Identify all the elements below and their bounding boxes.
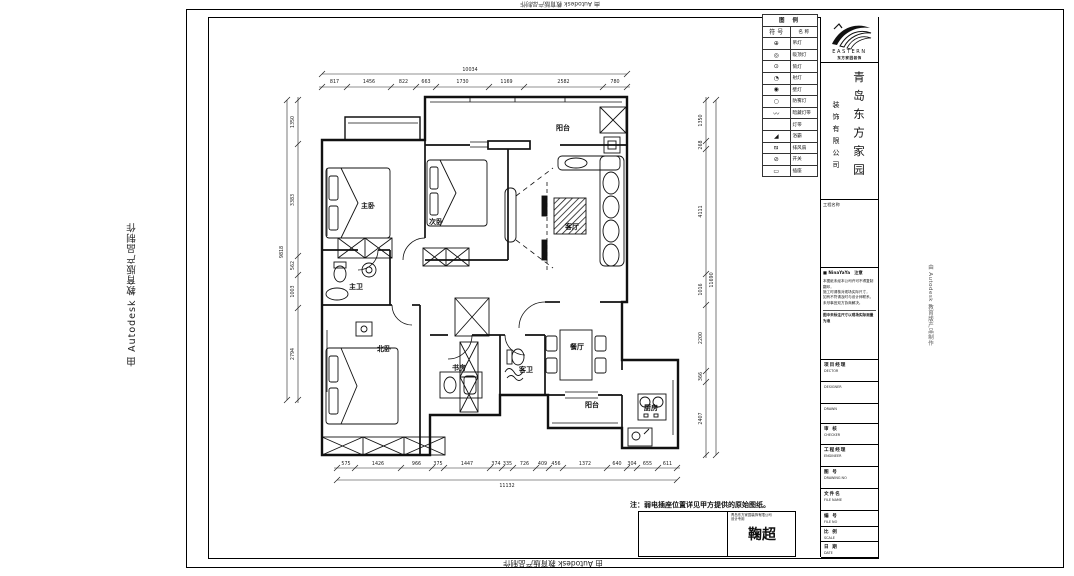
room-label: 阳台 [556,123,570,132]
legend-item-name: 筒灯 [790,61,818,73]
svg-text:456: 456 [551,461,560,467]
signature-box-divider [727,512,728,556]
floor-plan: 8171456822663173011692582780100345751426… [210,20,763,560]
legend-row: ⊘开关 [763,154,818,166]
svg-text:726: 726 [520,461,529,467]
legend-item-name: 射灯 [790,72,818,84]
autodesk-watermark-right: 由 Autodesk 教育版产品制作 [926,264,934,346]
legend-symbol-icon: ◎ [763,49,791,61]
autodesk-watermark-top: 由 Autodesk 教育版产品制作 [480,0,640,9]
furniture [326,156,666,446]
legend-row: ○防雾灯 [763,96,818,108]
legend-symbol-icon: ⧅ [763,142,791,154]
legend-row: ▭插座 [763,165,818,177]
project-name-label: 工程名称 [821,200,878,208]
north-bed [326,322,398,424]
svg-text:1447: 1447 [461,461,473,467]
notice-cell: ■ NinaYaYa 注意 本图纸未经本公司许可不得复制翻印，施工时请核对现场实… [821,268,878,360]
svg-text:268: 268 [698,140,704,149]
svg-text:1456: 1456 [363,79,375,85]
svg-text:1350: 1350 [698,114,704,126]
svg-text:1372: 1372 [579,461,591,467]
svg-text:11132: 11132 [499,483,514,489]
notice-lines: 本图纸未经本公司许可不得复制翻印，施工时请核对现场实际尺寸，如有不符请及时与设计… [823,279,876,306]
svg-text:780: 780 [610,79,619,85]
svg-text:366: 366 [698,372,704,381]
field-file-name: 文件名FILE NAME [821,489,878,511]
room-labels: 阳台主卧次卧客厅主卫北卧书房客卫餐厅阳台厨房 [349,123,658,412]
svg-text:1016: 1016 [698,283,704,295]
svg-text:575: 575 [341,461,350,467]
room-label: 客卫 [518,365,533,374]
legend-item-name: 暗藏灯带 [790,107,818,119]
svg-text:655: 655 [643,461,652,467]
room-label: 阳台 [585,400,599,409]
legend-symbol-icon: ◢ [763,130,791,142]
svg-text:1730: 1730 [456,79,468,85]
exterior-walls [322,97,678,455]
legend-symbol-icon: ⊕ [763,38,791,50]
svg-text:4111: 4111 [698,205,704,217]
field-date: 日 期DATE [821,542,878,558]
legend-symbol-icon: ○ [763,96,791,108]
svg-text:966: 966 [412,461,421,467]
legend-item-name: 插座 [790,165,818,177]
eastern-swoosh-logo-icon [827,19,873,50]
svg-text:304: 304 [627,461,636,467]
project-name-cell: 工程名称 [821,200,878,268]
field-engineer: 工程经理ENGINEER [821,445,878,467]
dim-bottom: 5751426966375144737433572640945613726403… [334,461,680,489]
svg-text:663: 663 [421,79,430,85]
legend-row: ⊕吊灯 [763,38,818,50]
field-drawing-no: 图 号DRAWING NO [821,467,878,489]
svg-text:2200: 2200 [698,332,704,344]
svg-text:409: 409 [538,461,547,467]
legend-row: ⊙筒灯 [763,61,818,73]
dim-right: 1350268411110162200366240711690 [698,97,719,458]
svg-text:1169: 1169 [500,79,512,85]
legend-table: 图 例 符 号 名 称 ⊕吊灯◎吸顶灯⊙筒灯◔射灯◉壁灯○防雾灯〰暗藏灯带灯带◢… [762,14,818,177]
kitchen-fixtures [628,394,666,446]
legend-col-symbol: 符 号 [763,26,791,38]
company-name-main: 青岛东方家园 [851,71,867,182]
svg-text:2794: 2794 [290,348,296,360]
svg-text:2407: 2407 [698,412,704,424]
svg-text:1350: 1350 [290,116,296,128]
legend-symbol-icon: ◉ [763,84,791,96]
designer-signature: 鞠超 [731,524,793,544]
room-label: 主卫 [349,282,363,291]
legend-item-name: 防雾灯 [790,96,818,108]
dim-top: 817145682266317301169258278010034 [319,67,630,90]
svg-text:9818: 9818 [279,246,285,258]
weak-current-note: 注：弱电插座位置详见甲方提供的原始图纸。 [630,500,770,510]
room-label: 厨房 [644,403,658,412]
interior-walls [322,140,627,455]
room-label: 次卧 [429,217,443,226]
legend-row: ◉壁灯 [763,84,818,96]
dim-left: 13503383562100327949818 [279,97,301,403]
legend-symbol-icon [763,119,791,131]
master-bed [326,168,390,238]
svg-text:640: 640 [612,461,621,467]
legend-item-name: 壁灯 [790,84,818,96]
svg-text:374: 374 [491,461,500,467]
company-name-cell: 青岛东方家园 装饰有限公司 [821,63,878,200]
room-label: 客厅 [564,222,579,231]
door-leaf [505,188,516,242]
legend-item-name: 开关 [790,154,818,166]
svg-text:10034: 10034 [462,67,477,73]
master-bath-fixtures [326,262,376,300]
room-label: 书房 [452,363,466,372]
legend-symbol-icon: ◔ [763,72,791,84]
second-bed [427,160,487,226]
room-label: 北卧 [377,344,391,353]
svg-text:375: 375 [433,461,442,467]
door-arcs [358,168,553,359]
guest-bath-fixtures [505,349,524,381]
legend-row: ⧅排风扇 [763,142,818,154]
company-name-sub: 装饰有限公司 [831,101,841,173]
logo-wordmark: EASTERN [821,49,878,55]
cabinets-and-shafts [322,107,626,455]
legend-symbol-icon: 〰 [763,107,791,119]
field-drawn: DRAWN [821,404,878,424]
title-block-fields: 项目经理DECTORDESIGNERDRAWN审 核CHECKER工程经理ENG… [821,360,878,558]
legend-item-name: 浴霸 [790,130,818,142]
legend-row: 灯带 [763,119,818,131]
field-dector: 项目经理DECTOR [821,360,878,382]
svg-text:562: 562 [290,261,296,270]
company-logo: EASTERN 东方家园装饰 [821,17,878,63]
legend-row: ◢浴霸 [763,130,818,142]
tv-wall [542,182,547,272]
notice-header: ■ NinaYaYa 注意 [823,270,876,276]
title-block: EASTERN 东方家园装饰 青岛东方家园 装饰有限公司 工程名称 ■ Nina… [820,17,878,557]
svg-text:817: 817 [330,79,339,85]
room-label: 主卧 [361,201,375,210]
legend-title: 图 例 [763,15,818,27]
legend-row: 〰暗藏灯带 [763,107,818,119]
legend-item-name: 吊灯 [790,38,818,50]
svg-text:611: 611 [663,461,672,467]
svg-text:1003: 1003 [290,285,296,297]
legend-item-name: 灯带 [790,119,818,131]
notice-line: 未尽事宜双方协商解决。 [823,301,876,306]
field-checker: 审 核CHECKER [821,424,878,445]
field-scale: 比 例SCALE [821,527,878,542]
field-designer: DESIGNER [821,382,878,404]
legend-item-name: 排风扇 [790,142,818,154]
legend-row: ◎吸顶灯 [763,49,818,61]
svg-text:2582: 2582 [557,79,569,85]
room-label: 餐厅 [569,342,584,351]
svg-text:822: 822 [399,79,408,85]
legend-symbol-icon: ⊘ [763,154,791,166]
legend-symbol-icon: ▭ [763,165,791,177]
legend-item-name: 吸顶灯 [790,49,818,61]
field-file-no: 编 号FILE NO [821,511,878,527]
signature-box: 青岛东方家园装饰有限公司 设计专用 鞠超 [638,511,796,557]
logo-subtext: 东方家园装饰 [821,56,878,61]
autodesk-watermark-left: 由 Autodesk 教育版产品制作 [126,222,140,366]
legend-col-name: 名 称 [790,26,818,38]
svg-text:1426: 1426 [372,461,384,467]
svg-text:3383: 3383 [290,194,296,206]
dining-set [546,330,606,380]
svg-text:335: 335 [503,461,512,467]
notice-line: 本图纸未经本公司许可不得复制翻印， [823,279,876,290]
svg-text:11690: 11690 [709,272,715,287]
legend-row: ◔射灯 [763,72,818,84]
legend-symbol-icon: ⊙ [763,61,791,73]
notice-footer: 图中未标注尺寸以现场实际测量为准 [823,310,876,324]
signature-company-lines: 青岛东方家园装饰有限公司 设计专用 [731,513,772,522]
